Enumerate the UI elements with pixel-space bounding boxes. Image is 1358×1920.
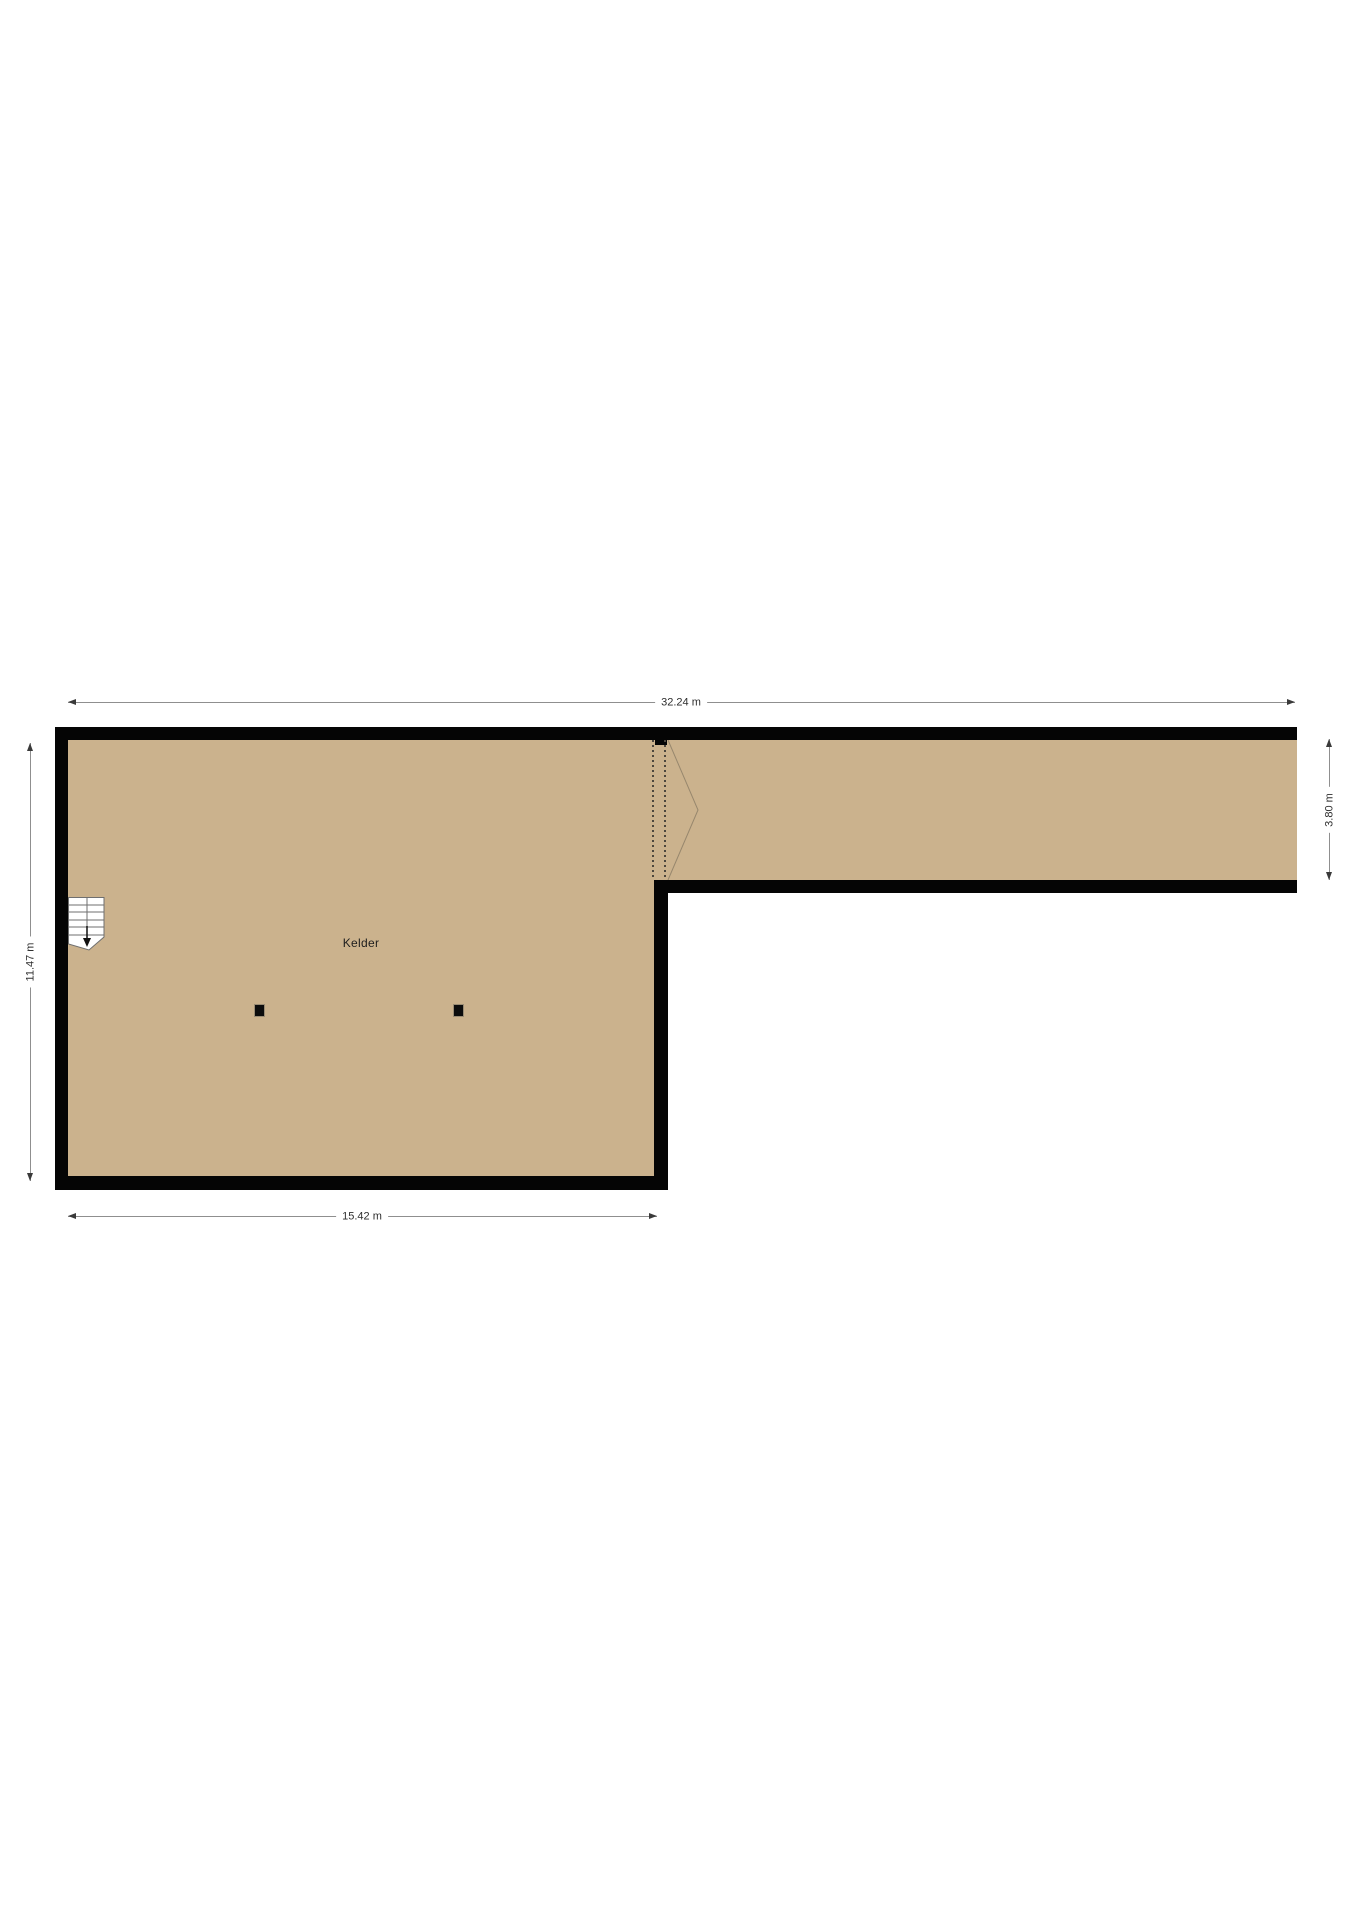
dimension-arrow-left-icon bbox=[68, 699, 76, 705]
dimension-arrow-down-icon bbox=[1326, 872, 1332, 880]
column-pillar bbox=[255, 1005, 264, 1016]
wall-bottom-room bbox=[55, 1176, 668, 1190]
room-name-label: Kelder bbox=[343, 936, 380, 950]
dimension-arrow-down-icon bbox=[27, 1173, 33, 1181]
opening-direction-marker bbox=[654, 740, 714, 880]
column-pillar bbox=[454, 1005, 463, 1016]
wall-bottom-corridor bbox=[654, 880, 1297, 893]
dimension-left-label: 11.47 m bbox=[25, 937, 38, 988]
dimension-right-label: 3.80 m bbox=[1324, 787, 1337, 833]
dimension-arrow-up-icon bbox=[1326, 739, 1332, 747]
dimension-arrow-left-icon bbox=[68, 1213, 76, 1219]
dimension-arrow-right-icon bbox=[1287, 699, 1295, 705]
dimension-arrow-up-icon bbox=[27, 743, 33, 751]
floorplan-canvas: Kelder 32.24 m 11.47 m 3.80 m 15.42 m bbox=[0, 0, 1358, 1920]
wall-top bbox=[55, 727, 1297, 740]
wall-left bbox=[55, 727, 68, 1190]
dimension-top-label: 32.24 m bbox=[655, 697, 707, 710]
corridor-floor-fill bbox=[654, 740, 1297, 880]
staircase bbox=[68, 897, 105, 952]
wall-right-room bbox=[654, 880, 668, 1190]
dimension-arrow-right-icon bbox=[649, 1213, 657, 1219]
room-floor-fill bbox=[68, 740, 654, 1176]
dimension-bottom-label: 15.42 m bbox=[336, 1211, 388, 1224]
